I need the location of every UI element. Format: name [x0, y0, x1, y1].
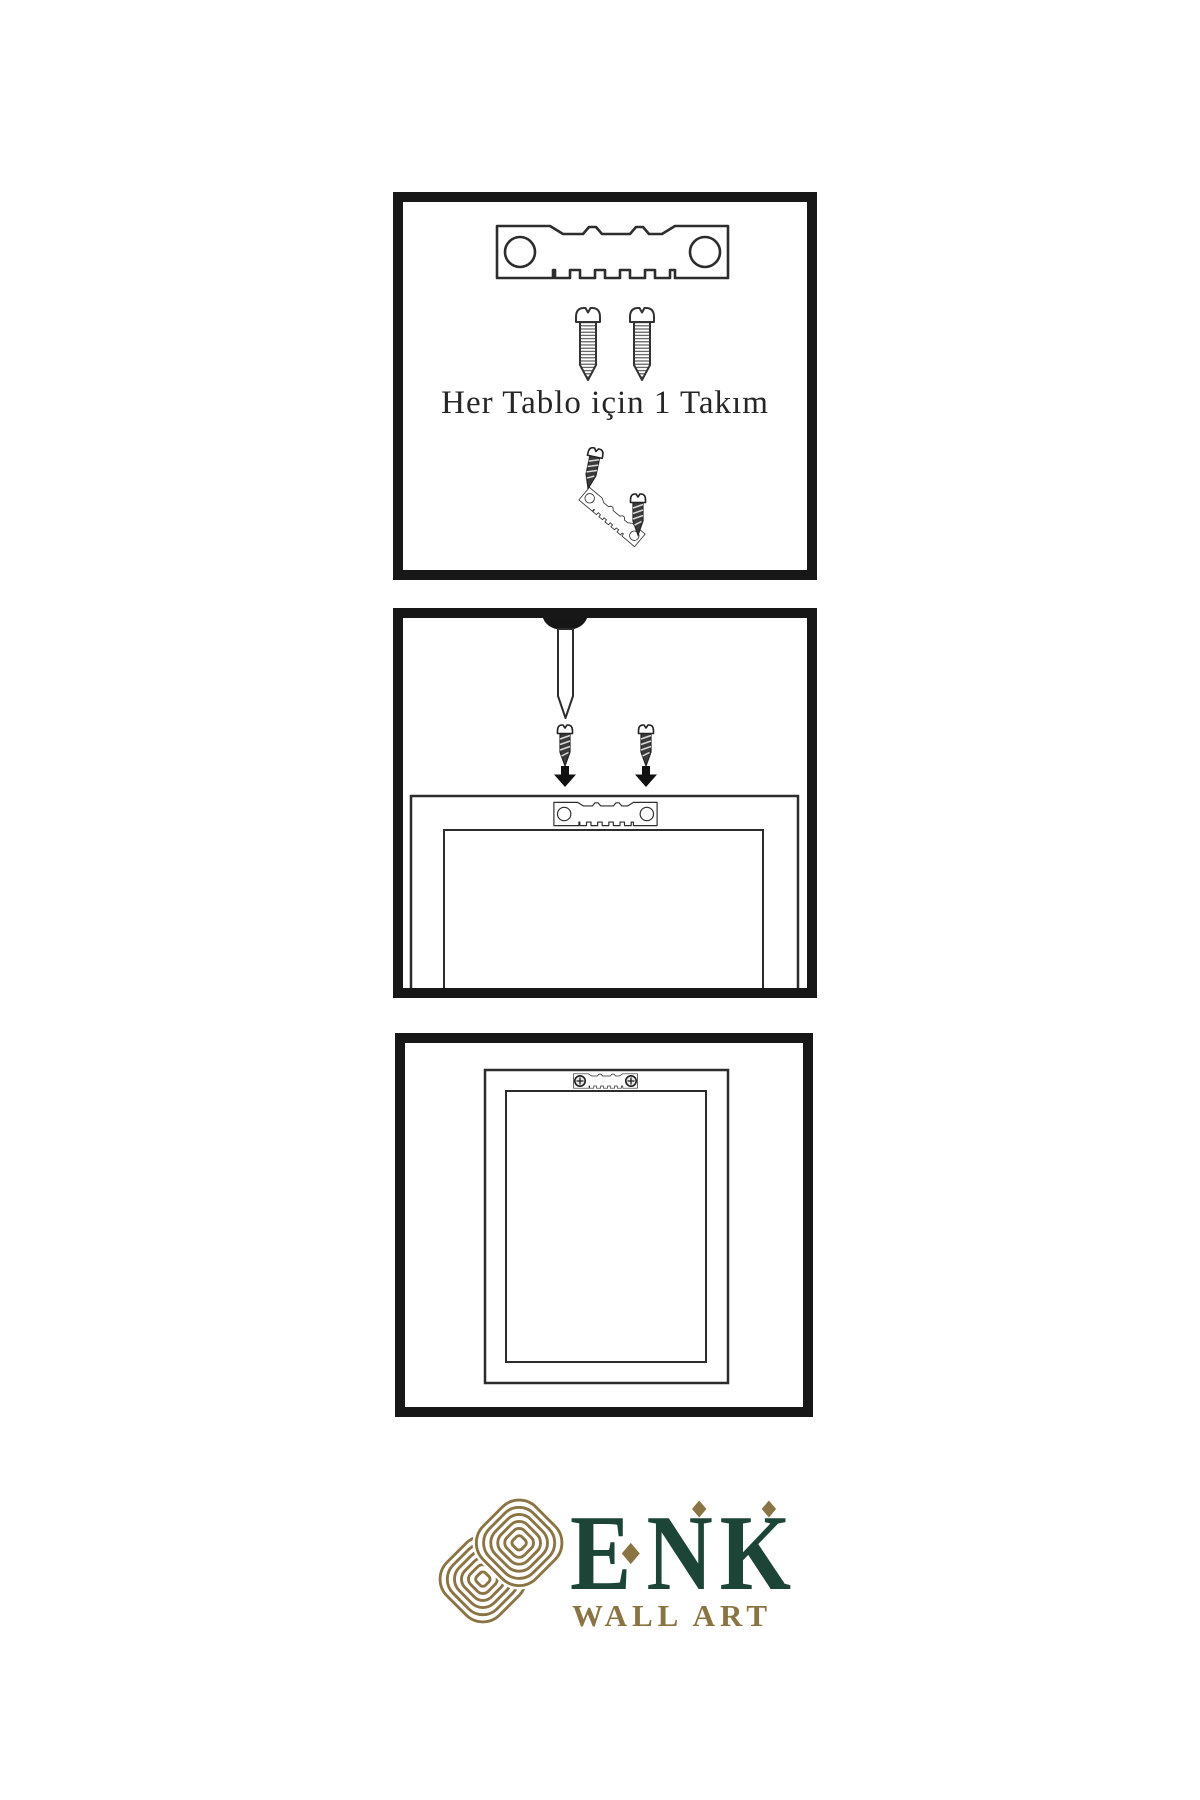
sawtooth-hanger-icon — [497, 226, 728, 278]
brand-knot-icon — [438, 1497, 564, 1625]
mounted-frame-illustration — [405, 1043, 803, 1407]
step-2-attach-hanger-panel — [393, 608, 817, 998]
small-screw-icon — [639, 725, 654, 766]
sawtooth-hanger-icon — [554, 802, 657, 825]
nail-icon — [543, 618, 587, 718]
kit-caption: Her Tablo için 1 Takım — [403, 385, 807, 422]
brand-tagline: WALL ART — [572, 1598, 772, 1634]
screw-head-icon — [575, 1076, 585, 1086]
screw-icon — [630, 308, 654, 380]
instruction-sheet: Her Tablo için 1 Takım — [0, 0, 1200, 1800]
brand-name: ENK — [570, 1500, 825, 1608]
attach-hanger-illustration — [403, 618, 807, 988]
step-1-hardware-kit-panel: Her Tablo için 1 Takım — [393, 192, 817, 580]
arrow-down-icon — [635, 766, 657, 787]
small-screw-icon — [581, 447, 604, 490]
brand-wordmark: ENK WALL ART — [570, 1500, 870, 1640]
arrow-down-icon — [554, 766, 576, 787]
screw-icon — [576, 308, 600, 380]
small-screw-icon — [558, 725, 573, 766]
screw-head-icon — [626, 1076, 636, 1086]
step-3-mounted-frame-panel — [395, 1033, 813, 1417]
brand-name-letters: NK — [647, 1494, 798, 1613]
frame-canvas-outline — [506, 1091, 706, 1362]
frame-canvas-outline — [444, 830, 763, 988]
